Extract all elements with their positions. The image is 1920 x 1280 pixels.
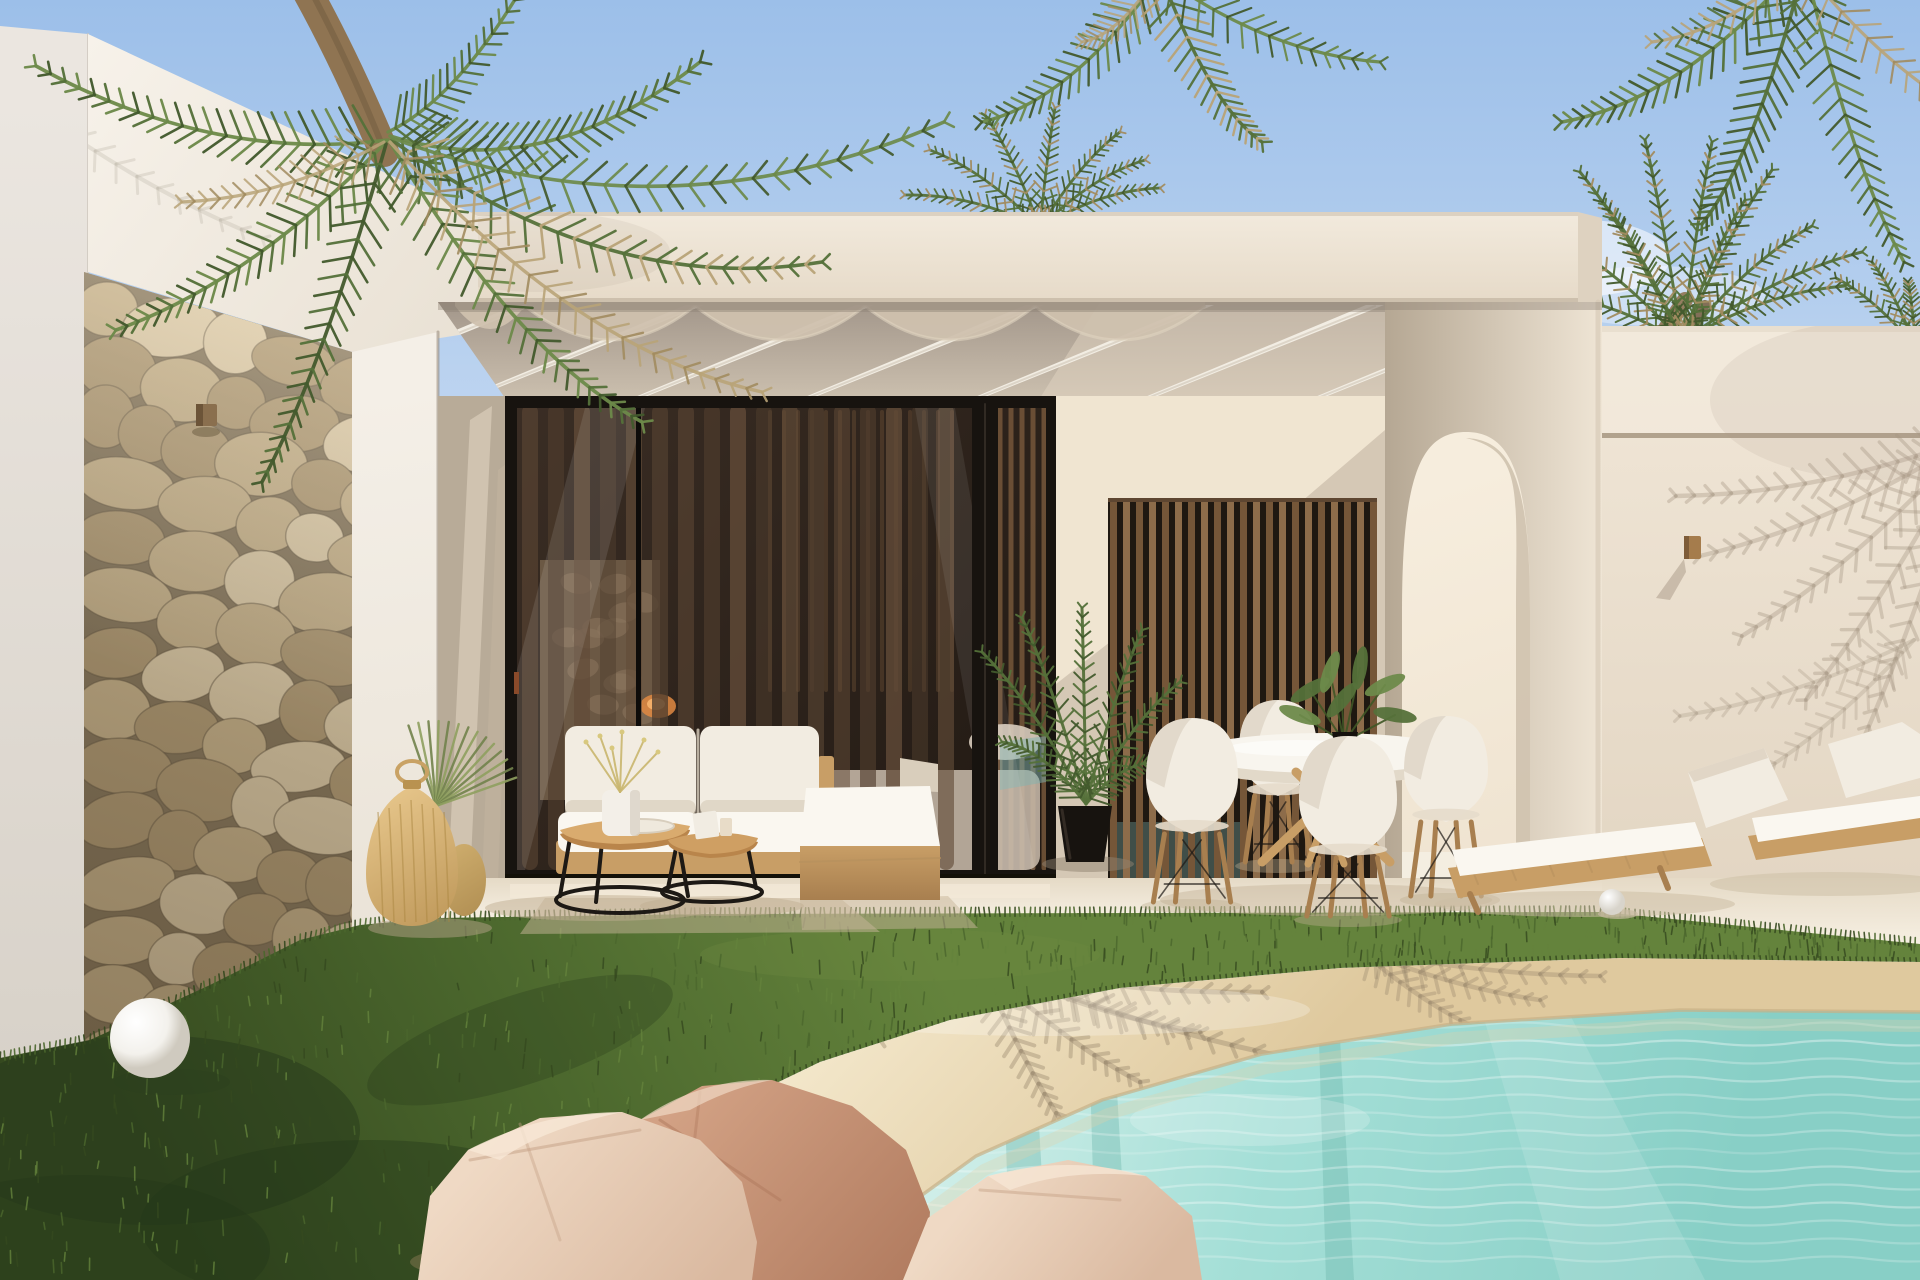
render-canvas <box>0 0 1920 1280</box>
patio <box>295 302 1724 884</box>
fascia <box>410 212 1602 302</box>
villa-render <box>0 0 1920 1280</box>
